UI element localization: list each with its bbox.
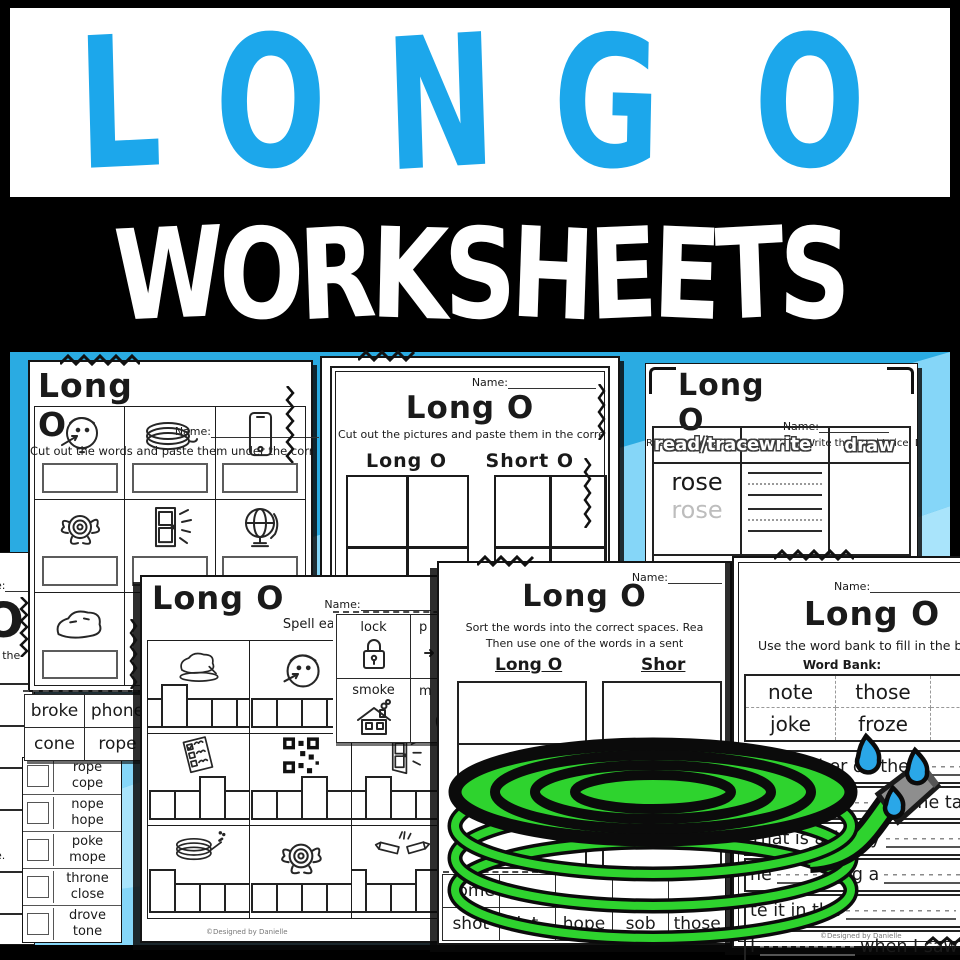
picture-cell <box>215 406 306 500</box>
list-row: nopehope <box>23 795 121 832</box>
globe-image <box>229 500 291 556</box>
binding-squiggle-icon <box>60 354 140 366</box>
instruction-fragment: s the <box>0 649 20 662</box>
sheet-instruction: Use the word bank to fill in the blank <box>744 638 960 653</box>
picture-cell <box>34 592 125 686</box>
column-header-short-o: Short O <box>486 450 574 472</box>
picture-cell <box>124 406 215 500</box>
list-row: pokemope <box>23 832 121 869</box>
spell-cell <box>249 733 352 827</box>
sheet-title: Long O <box>152 579 284 617</box>
spell-cell <box>147 733 250 827</box>
stone-image <box>47 593 113 650</box>
sheet-instruction: Cut out the pictures and paste them in t… <box>338 428 602 441</box>
column-header: read/trace <box>654 428 742 462</box>
product-cover: LONG O WORKSHEETS e: O s the e. ropecope <box>0 0 960 960</box>
corner-bracket-icon <box>649 367 676 394</box>
hose-coil <box>455 744 894 938</box>
spell-cell <box>147 825 250 919</box>
close-door-image <box>139 500 201 556</box>
corner-bracket-icon <box>887 367 914 394</box>
lock-image <box>357 635 391 673</box>
list-row: ropecope <box>23 758 121 795</box>
column-header-short-o: Shor <box>641 655 685 675</box>
picture-cell <box>34 406 125 500</box>
garden-hose-clipart <box>428 730 950 950</box>
broke-pencil-image <box>370 826 436 869</box>
nose-image <box>270 646 332 698</box>
name-field: Name: <box>472 376 596 389</box>
column-header-long-o: Long O <box>495 655 562 675</box>
sheet-title: Long O <box>322 390 618 426</box>
cover-title: LONG O <box>59 12 900 194</box>
sheet-word-list: ropecope nopehope pokemope throneclose d… <box>22 757 122 943</box>
vote-image <box>170 734 228 777</box>
smoke-house-image <box>354 698 394 738</box>
line-fragment: e. <box>0 849 5 862</box>
sheet-title: Long O <box>439 579 730 614</box>
hose-image <box>166 826 232 869</box>
column-header-long-o: Long O <box>366 450 447 472</box>
spell-cell <box>249 825 352 919</box>
nose-image <box>49 407 111 463</box>
list-row: throneclose <box>23 869 121 906</box>
column-header: write <box>742 428 830 462</box>
binding-squiggle-icon <box>358 350 418 362</box>
column-header: draw <box>830 435 909 456</box>
rose-image <box>49 500 111 556</box>
word-card: cone <box>24 727 85 761</box>
picture-cell <box>34 499 125 593</box>
name-field: Name: <box>834 580 960 593</box>
stone-image <box>166 641 232 684</box>
cover-subtitle: WORKSHEETS <box>114 212 846 337</box>
credit-text: ©Designed by Danielle <box>206 928 288 936</box>
code-image <box>276 734 326 777</box>
name-field: Name: <box>324 598 430 611</box>
binding-squiggle-icon <box>129 619 138 689</box>
sheet-title: Long O <box>734 594 960 633</box>
picture-card: smoke <box>336 678 411 743</box>
rope-image <box>139 407 201 463</box>
word-bank-label: Word Bank: <box>734 658 950 672</box>
cover-subtitle-band: WORKSHEETS <box>10 197 950 352</box>
cover-title-box: LONG O <box>10 8 950 197</box>
sheet-instruction: Then use one of the words in a sent <box>445 637 724 650</box>
rose-image <box>270 831 332 883</box>
word-card: broke <box>24 694 85 728</box>
phone-image <box>229 407 291 463</box>
binding-squiggle-icon <box>477 555 537 567</box>
spell-cell <box>147 640 250 734</box>
word-row: roserose <box>654 464 909 556</box>
picture-card: lock <box>336 614 411 679</box>
sheet-instruction: Sort the words into the correct spaces. … <box>445 621 724 634</box>
binding-squiggle-icon <box>774 549 854 561</box>
list-row: drovetone <box>23 906 121 942</box>
